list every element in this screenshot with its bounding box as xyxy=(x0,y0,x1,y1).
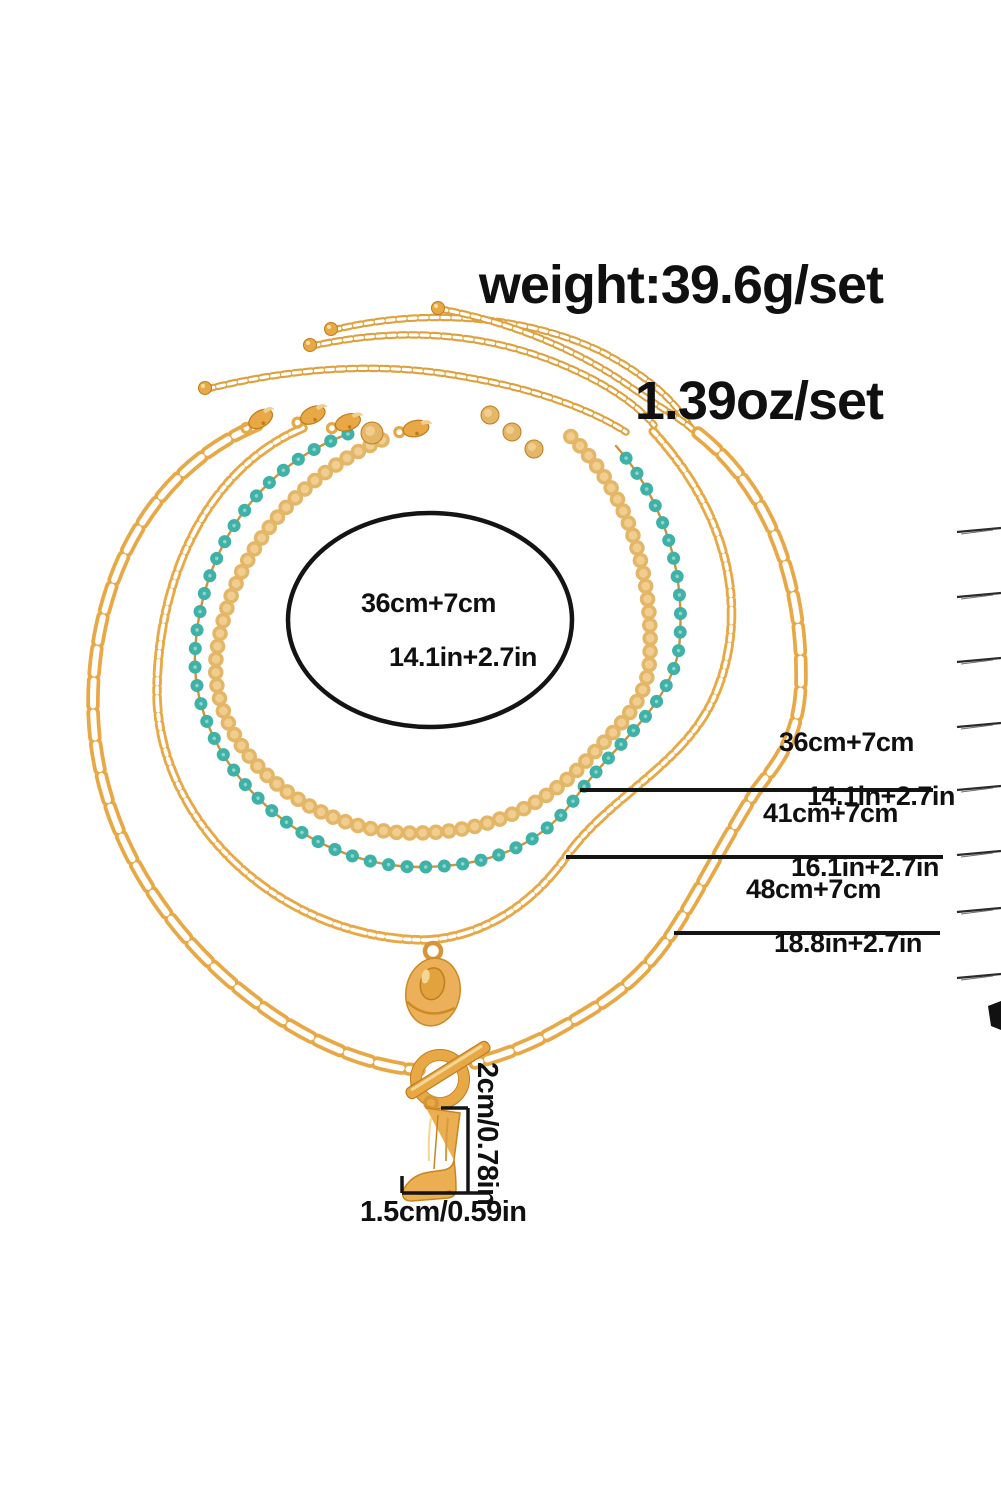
extender-ball-end xyxy=(432,302,445,315)
figaro-chain-length-label: 41cm+7cm 16.1in+2.7in xyxy=(763,800,939,881)
cowboy-hat-pendant xyxy=(401,943,466,1030)
product-image: weight:39.6g/set 1.39oz/set 36cm+7cm 14.… xyxy=(0,0,1001,1500)
extender-ball-end xyxy=(325,323,338,336)
lobster-clasp xyxy=(393,417,434,441)
pendant-height-label: 2cm/0.78in xyxy=(470,1062,503,1212)
weight-label: weight:39.6g/set 1.39oz/set xyxy=(479,256,883,430)
cowboy-boot-pendant xyxy=(403,1097,460,1201)
paperclip-chain-right xyxy=(475,433,801,1063)
connector-disc xyxy=(361,422,383,444)
extender-ball-end xyxy=(304,339,317,352)
paperclip-chain-length-label: 48cm+7cm 18.8in+2.7in xyxy=(746,876,922,957)
connector-disc xyxy=(525,440,543,458)
edge-ink-blob xyxy=(988,1001,1001,1030)
weight-grams: weight:39.6g/set xyxy=(479,255,883,315)
lobster-clasp xyxy=(238,403,279,437)
lobster-clasp xyxy=(290,400,332,431)
inner-chain-length-label: 36cm+7cm 14.1in+2.7in xyxy=(361,590,537,671)
pendant-width-label: 1.5cm/0.59in xyxy=(360,1196,527,1229)
edge-scratch-marks xyxy=(957,528,1001,1030)
weight-ounces: 1.39oz/set xyxy=(635,371,883,431)
extender-ball-end xyxy=(199,382,212,395)
